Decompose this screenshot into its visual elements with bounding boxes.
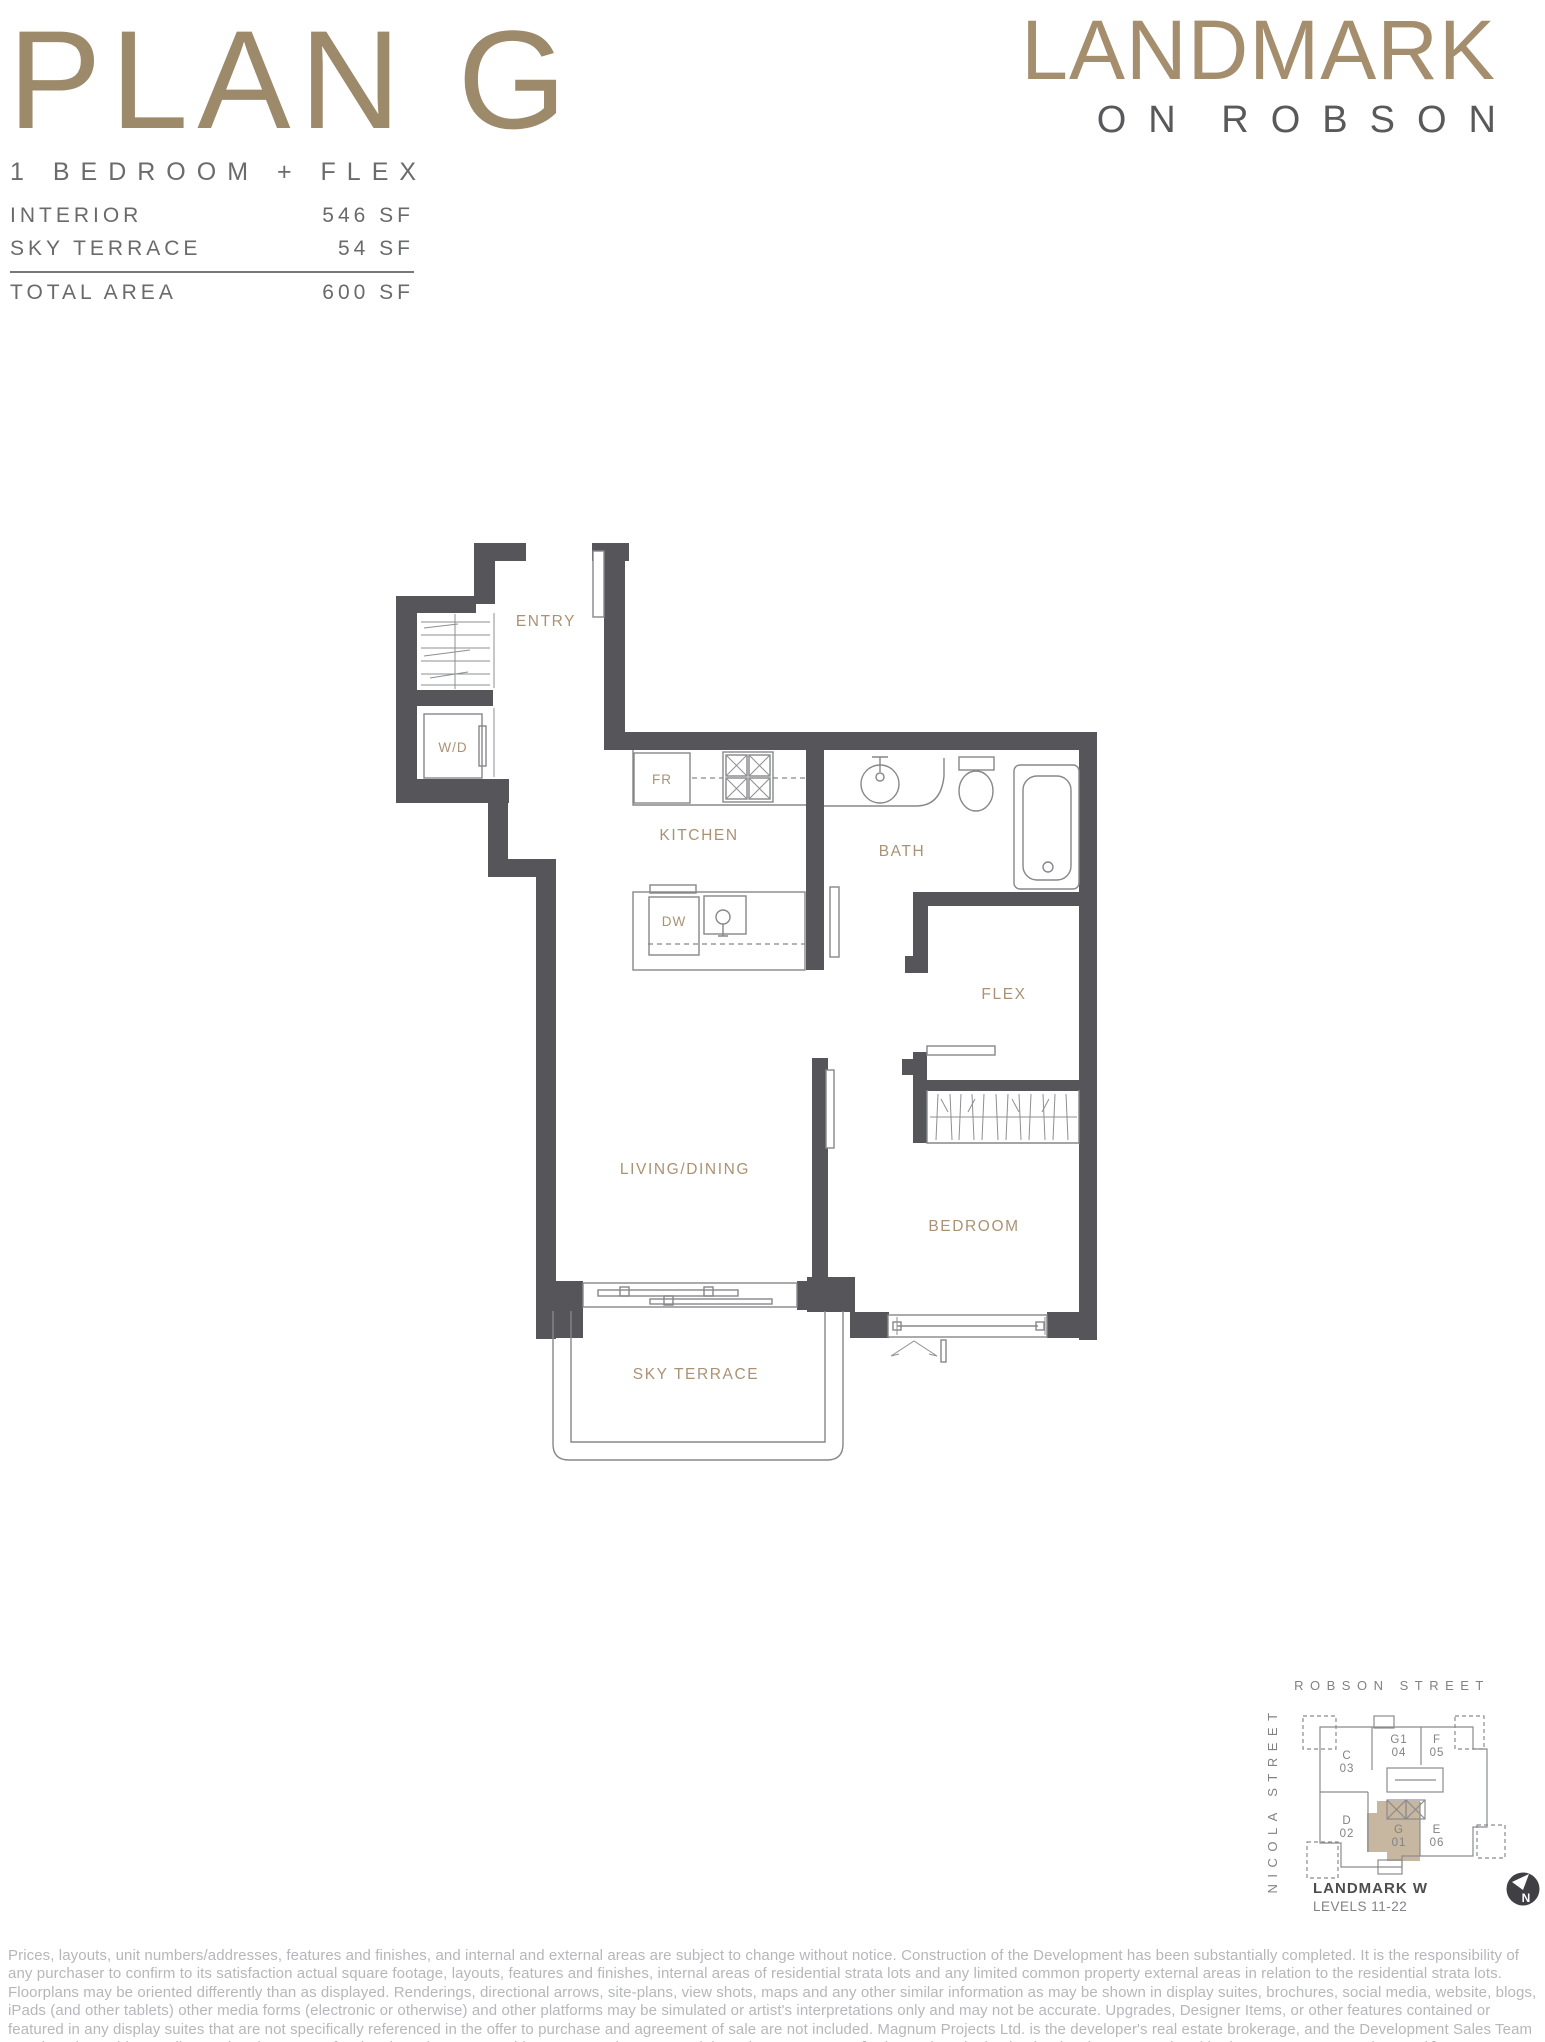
plan-type-label: 1 BEDROOM + FLEX <box>10 158 427 187</box>
kitchen-island <box>633 885 805 970</box>
stat-row-total: TOTAL AREA 600 SF <box>10 277 414 310</box>
room-label-bedroom: BEDROOM <box>928 1218 1019 1235</box>
room-label-kitchen: KITCHEN <box>659 827 738 844</box>
keymap-unit-c: C03 <box>1340 1750 1355 1775</box>
keymap-levels: LEVELS 11-22 <box>1313 1899 1407 1914</box>
bathroom-fixtures <box>824 757 1079 957</box>
keymap-unit-e: E06 <box>1430 1824 1445 1849</box>
kitchen-sink-icon <box>704 896 746 936</box>
washer-dryer-label: W/D <box>438 740 467 755</box>
floorplan-drawing: ENTRY W/D FR KITCHEN DW BATH FLEX LIVING… <box>390 525 1105 1470</box>
stat-label: TOTAL AREA <box>10 281 177 305</box>
bedroom-closet <box>927 1090 1079 1143</box>
bath-sink-icon <box>861 757 899 803</box>
stat-label: INTERIOR <box>10 204 142 228</box>
room-label-entry: ENTRY <box>516 613 576 630</box>
dishwasher-label: DW <box>662 914 687 929</box>
brand-name: LANDMARK <box>1021 8 1496 92</box>
room-label-living: LIVING/DINING <box>620 1161 750 1178</box>
floorplan-sheet: PLAN G 1 BEDROOM + FLEX INTERIOR 546 SF … <box>0 0 1545 2042</box>
stat-value: 546 SF <box>322 204 414 228</box>
keymap-unit-d: D02 <box>1340 1815 1355 1840</box>
legal-disclaimer: Prices, layouts, unit numbers/addresses,… <box>8 1947 1539 2042</box>
sliding-door <box>583 1283 797 1307</box>
room-label-flex: FLEX <box>981 986 1026 1003</box>
keymap-unit-f: F05 <box>1430 1734 1445 1759</box>
keymap-street-top: ROBSON STREET <box>1294 1678 1490 1693</box>
area-stats: INTERIOR 546 SF SKY TERRACE 54 SF TOTAL … <box>10 200 414 310</box>
stat-value: 600 SF <box>322 281 414 305</box>
compass-letter: N <box>1522 1891 1531 1905</box>
keymap-unit-g1: G104 <box>1390 1734 1407 1759</box>
keymap-building-name: LANDMARK W <box>1313 1880 1428 1897</box>
entry-door-leaf <box>593 551 604 617</box>
bedroom-door-swing <box>891 1340 946 1362</box>
brand-logo: LANDMARK ON ROBSON <box>1021 8 1496 142</box>
stat-row-sky-terrace: SKY TERRACE 54 SF <box>10 233 414 266</box>
page-title: PLAN G <box>8 10 576 150</box>
stats-divider <box>10 271 414 273</box>
stat-label: SKY TERRACE <box>10 237 201 261</box>
terrace-railing <box>553 1311 843 1460</box>
toilet-icon <box>959 757 994 811</box>
stat-row-interior: INTERIOR 546 SF <box>10 200 414 233</box>
bedroom-door-leaf <box>826 1070 834 1148</box>
room-label-terrace: SKY TERRACE <box>633 1366 759 1383</box>
room-label-bath: BATH <box>879 843 926 860</box>
stat-value: 54 SF <box>338 237 414 261</box>
north-compass-icon: N <box>1507 1873 1540 1906</box>
fridge-label: FR <box>652 772 672 787</box>
flex-shelf <box>927 1046 995 1055</box>
keymap-street-left: NICOLA STREET <box>1265 1706 1280 1893</box>
brand-subname: ON ROBSON <box>1021 99 1518 142</box>
stove-icon <box>723 752 773 802</box>
site-keymap: ROBSON STREET NICOLA STREET C03 G104 F05 <box>1245 1650 1545 1925</box>
bathtub-icon <box>1014 765 1079 889</box>
bath-door-leaf <box>830 887 839 957</box>
bedroom-window <box>888 1315 1047 1337</box>
